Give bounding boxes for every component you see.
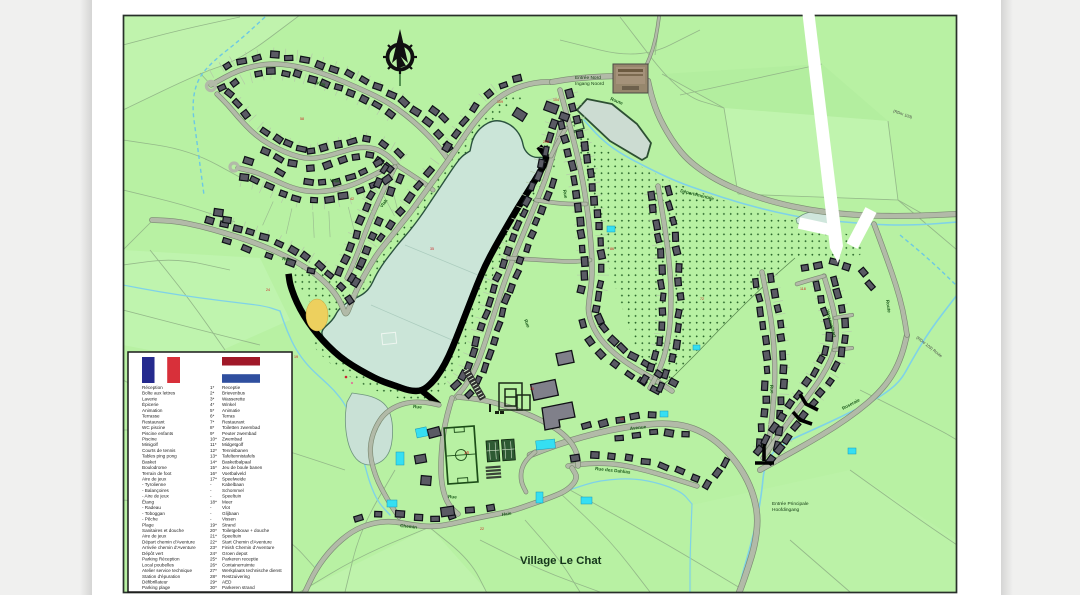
svg-text:15*: 15*	[210, 465, 217, 470]
svg-text:Vlot: Vlot	[222, 505, 231, 510]
svg-text:Tafeltennistafels: Tafeltennistafels	[222, 454, 256, 459]
svg-text:Wasserette: Wasserette	[222, 396, 246, 401]
svg-text:Speeltuin: Speeltuin	[222, 494, 242, 499]
svg-text:Courts de tennis: Courts de tennis	[142, 448, 176, 453]
svg-text:Local poubelles: Local poubelles	[142, 562, 175, 567]
svg-text:Vissen: Vissen	[222, 517, 236, 522]
svg-text:Hoofdingang: Hoofdingang	[772, 507, 800, 513]
svg-text:6*: 6*	[210, 414, 215, 419]
svg-text:Restaurant: Restaurant	[142, 419, 165, 424]
svg-text:20*: 20*	[210, 528, 217, 533]
svg-text:- Tyrolienne: - Tyrolienne	[142, 482, 166, 487]
svg-text:72: 72	[700, 297, 704, 301]
svg-text:22: 22	[480, 527, 484, 531]
svg-text:Épicerie: Épicerie	[142, 401, 159, 407]
svg-text:18*: 18*	[210, 499, 217, 504]
svg-text:Piscine: Piscine	[142, 437, 157, 442]
svg-text:25*: 25*	[210, 557, 217, 562]
svg-text:Défibrillateur: Défibrillateur	[142, 580, 168, 585]
svg-text:Meer: Meer	[222, 499, 233, 504]
svg-text:28*: 28*	[210, 574, 217, 579]
svg-text:Départ chemin d'Aventure: Départ chemin d'Aventure	[142, 539, 195, 544]
svg-text:Village Le Chat: Village Le Chat	[520, 555, 602, 567]
svg-text:Schommel: Schommel	[222, 488, 244, 493]
svg-text:30*: 30*	[210, 585, 217, 590]
svg-text:Speeltuin: Speeltuin	[222, 534, 242, 539]
svg-text:WC piscine: WC piscine	[142, 425, 166, 430]
svg-text:Aire de jeux: Aire de jeux	[142, 534, 167, 539]
svg-text:19*: 19*	[210, 522, 217, 527]
svg-text:- Aire de jeux: - Aire de jeux	[142, 494, 170, 499]
svg-text:Start Chemin d'Aventure: Start Chemin d'Aventure	[222, 539, 272, 544]
svg-text:- Toboggan: - Toboggan	[142, 511, 165, 516]
svg-text:26*: 26*	[210, 562, 217, 567]
svg-text:Terrain de foot: Terrain de foot	[142, 471, 172, 476]
svg-text:Glijbaan: Glijbaan	[222, 511, 239, 516]
svg-text:3*: 3*	[210, 396, 215, 401]
svg-text:11*: 11*	[210, 442, 217, 447]
svg-text:Animatie: Animatie	[222, 408, 240, 413]
svg-text:23*: 23*	[210, 545, 217, 550]
svg-text:Voetbalveld: Voetbalveld	[222, 471, 246, 476]
svg-text:Rue: Rue	[413, 404, 422, 410]
svg-text:Terrasse: Terrasse	[142, 414, 160, 419]
svg-text:Parkeren receptie: Parkeren receptie	[222, 557, 259, 562]
svg-text:Zwembad: Zwembad	[222, 437, 243, 442]
svg-text:Aire de jeux: Aire de jeux	[142, 477, 167, 482]
svg-text:109: 109	[497, 100, 503, 104]
svg-text:Boîte aux lettres: Boîte aux lettres	[142, 391, 176, 396]
svg-text:Entrée Principale: Entrée Principale	[772, 501, 809, 507]
svg-text:Laverie: Laverie	[142, 396, 158, 401]
svg-text:Arrivée chemin d'Aventure: Arrivée chemin d'Aventure	[142, 545, 196, 550]
svg-text:Atelier service technique: Atelier service technique	[142, 568, 192, 573]
svg-text:Ingang Noord: Ingang Noord	[575, 81, 604, 87]
svg-text:Werkplaats technische dienst: Werkplaats technische dienst	[222, 568, 282, 573]
svg-text:208: 208	[543, 140, 549, 144]
svg-text:Entrée Nord: Entrée Nord	[575, 75, 601, 81]
svg-text:Rue: Rue	[448, 494, 457, 500]
svg-text:Réception: Réception	[142, 385, 163, 390]
svg-text:Restzuivering: Restzuivering	[222, 574, 250, 579]
svg-text:10*: 10*	[210, 437, 217, 442]
svg-text:58: 58	[300, 117, 304, 121]
svg-text:Midgetgolf: Midgetgolf	[222, 442, 244, 447]
svg-text:86: 86	[610, 247, 614, 251]
svg-text:Peuter zwembad: Peuter zwembad	[222, 431, 257, 436]
svg-text:29*: 29*	[210, 580, 217, 585]
svg-text:Parkeren strand: Parkeren strand	[222, 585, 255, 590]
svg-text:Parking Réception: Parking Réception	[142, 557, 180, 562]
svg-text:- Radeau: - Radeau	[142, 505, 161, 510]
svg-text:Toiletgebouw + douche: Toiletgebouw + douche	[222, 528, 270, 533]
svg-text:Station d'épuration: Station d'épuration	[142, 574, 181, 579]
svg-text:Restaurant: Restaurant	[222, 419, 245, 424]
svg-text:Brievenbus: Brievenbus	[222, 391, 246, 396]
svg-text:1*: 1*	[210, 385, 215, 390]
svg-text:Jeu de boule banen: Jeu de boule banen	[222, 465, 263, 470]
svg-text:13*: 13*	[210, 454, 217, 459]
svg-text:19: 19	[294, 355, 298, 359]
svg-text:118: 118	[800, 287, 806, 291]
svg-text:9*: 9*	[210, 431, 215, 436]
svg-text:Dépôt vert: Dépôt vert	[142, 551, 164, 556]
svg-text:Finish Chemin d'Aventure: Finish Chemin d'Aventure	[222, 545, 275, 550]
svg-text:Animation: Animation	[142, 408, 163, 413]
svg-text:Minigolf: Minigolf	[142, 442, 159, 447]
svg-text:Piscine enfants: Piscine enfants	[142, 431, 174, 436]
svg-text:21*: 21*	[210, 534, 217, 539]
svg-text:2*: 2*	[210, 391, 215, 396]
svg-text:Parking plage: Parking plage	[142, 585, 171, 590]
svg-text:14*: 14*	[210, 459, 217, 464]
svg-text:Receptie: Receptie	[222, 385, 241, 390]
svg-text:16*: 16*	[210, 471, 217, 476]
svg-text:Containerruimte: Containerruimte	[222, 562, 255, 567]
svg-text:24*: 24*	[210, 551, 217, 556]
svg-text:8*: 8*	[210, 425, 215, 430]
svg-text:Sanitaires et douche: Sanitaires et douche	[142, 528, 184, 533]
svg-text:17*: 17*	[210, 477, 217, 482]
svg-text:24: 24	[266, 288, 270, 292]
svg-text:Kabelbaan: Kabelbaan	[222, 482, 244, 487]
svg-text:5*: 5*	[210, 408, 215, 413]
svg-text:AED: AED	[222, 580, 232, 585]
svg-text:Basketbalpaal: Basketbalpaal	[222, 459, 251, 464]
svg-text:- Balançoires: - Balançoires	[142, 488, 170, 493]
svg-text:- Pêche: - Pêche	[142, 517, 158, 522]
svg-text:Basket: Basket	[142, 459, 157, 464]
svg-text:Groen depot: Groen depot	[222, 551, 248, 556]
svg-text:12*: 12*	[210, 448, 217, 453]
svg-text:Étang: Étang	[142, 498, 154, 504]
svg-text:Tennisbanen: Tennisbanen	[222, 448, 248, 453]
svg-text:28: 28	[620, 417, 624, 421]
svg-text:Toiletten zwembad: Toiletten zwembad	[222, 425, 260, 430]
svg-text:Boulodrome: Boulodrome	[142, 465, 167, 470]
svg-text:7*: 7*	[210, 419, 215, 424]
svg-text:16: 16	[464, 450, 470, 455]
svg-text:42: 42	[350, 197, 354, 201]
svg-text:Speelweide: Speelweide	[222, 477, 246, 482]
svg-text:Terras: Terras	[222, 414, 235, 419]
svg-text:25: 25	[530, 387, 534, 391]
svg-text:Vlak: Vlak	[330, 178, 340, 184]
svg-text:Rue: Rue	[769, 385, 775, 395]
svg-text:Winkel: Winkel	[222, 402, 236, 407]
svg-text:4*: 4*	[210, 402, 215, 407]
svg-text:Plage: Plage	[142, 522, 154, 527]
svg-text:27*: 27*	[210, 568, 217, 573]
svg-text:Tables ping pong: Tables ping pong	[142, 454, 177, 459]
svg-text:104: 104	[553, 98, 559, 102]
svg-text:22*: 22*	[210, 539, 217, 544]
svg-text:Strand: Strand	[222, 522, 236, 527]
svg-text:35: 35	[430, 247, 434, 251]
